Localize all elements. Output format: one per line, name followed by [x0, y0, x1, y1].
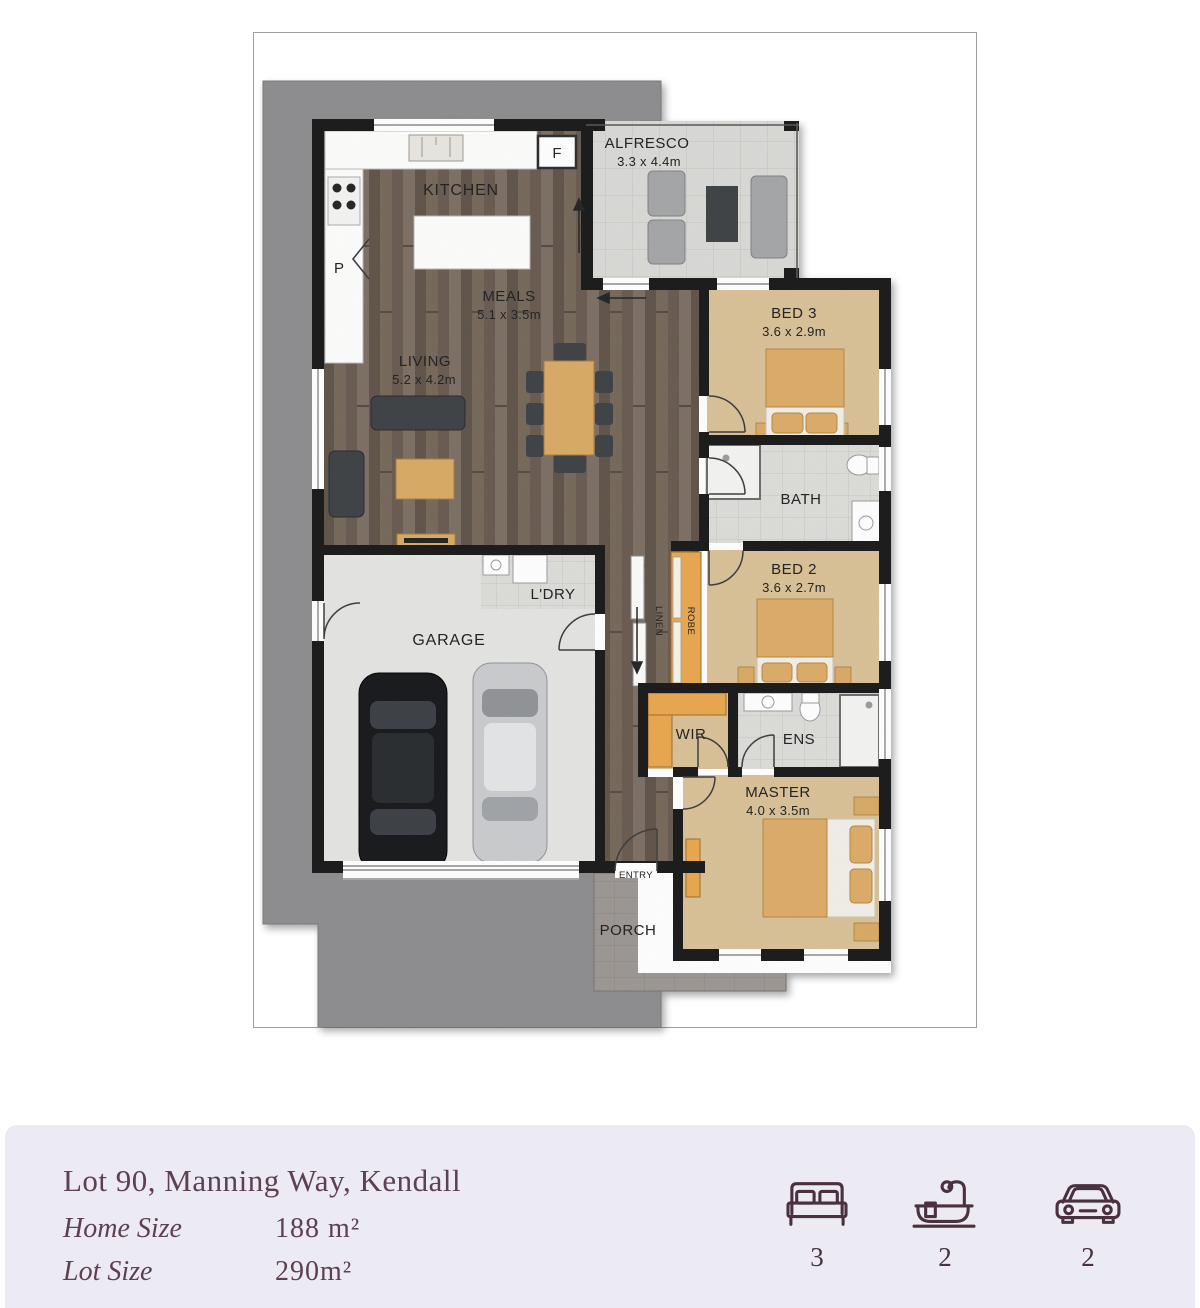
floorplan-svg: ALFRESCO 3.3 x 4.4m KITCHEN MEALS 5.1 x …: [254, 33, 976, 1027]
label-living: LIVING: [399, 353, 451, 370]
lot-size-label: Lot Size: [63, 1256, 275, 1288]
label-garage: GARAGE: [412, 632, 485, 649]
bed-icon: [778, 1220, 856, 1237]
label-bed3-dims: 3.6 x 2.9m: [762, 324, 826, 339]
label-living-dims: 5.2 x 4.2m: [392, 372, 456, 387]
bath-icon: [906, 1220, 984, 1237]
label-fridge: F: [552, 145, 561, 162]
label-pantry: P: [334, 260, 344, 277]
page: ALFRESCO 3.3 x 4.4m KITCHEN MEALS 5.1 x …: [0, 0, 1200, 1308]
home-size-row: Home Size188 m²: [63, 1213, 483, 1245]
cars-count: 2: [1033, 1242, 1143, 1273]
label-meals: MEALS: [482, 288, 535, 305]
label-wir: WIR: [676, 726, 707, 743]
floorplan-card: ALFRESCO 3.3 x 4.4m KITCHEN MEALS 5.1 x …: [253, 32, 977, 1028]
info-bar: Lot 90, Manning Way, Kendall Home Size18…: [5, 1125, 1195, 1308]
beds-count: 3: [762, 1242, 872, 1273]
baths-count: 2: [890, 1242, 1000, 1273]
address: Lot 90, Manning Way, Kendall: [63, 1163, 461, 1199]
stat-cars: 2: [1033, 1175, 1143, 1273]
label-kitchen: KITCHEN: [423, 182, 499, 199]
home-size-value: 188 m²: [275, 1213, 360, 1244]
label-meals-dims: 5.1 x 3.5m: [477, 307, 541, 322]
label-porch: PORCH: [600, 922, 657, 939]
label-bed2-dims: 3.6 x 2.7m: [762, 580, 826, 595]
label-alfresco: ALFRESCO: [605, 135, 690, 152]
stat-baths: 2: [890, 1175, 1000, 1273]
texture-overlay: [254, 33, 976, 1027]
label-alfresco-dims: 3.3 x 4.4m: [617, 154, 681, 169]
label-entry: ENTRY: [619, 870, 653, 881]
label-ldry: L'DRY: [530, 586, 575, 603]
car-icon: [1049, 1220, 1127, 1237]
label-linen: LINEN: [653, 606, 664, 636]
label-master: MASTER: [745, 784, 811, 801]
label-bed3: BED 3: [771, 305, 817, 322]
lot-size-row: Lot Size290m²: [63, 1256, 483, 1288]
stat-beds: 3: [762, 1175, 872, 1273]
label-bath: BATH: [781, 491, 822, 508]
lot-size-value: 290m²: [275, 1256, 352, 1287]
label-robe: ROBE: [685, 607, 696, 636]
label-master-dims: 4.0 x 3.5m: [746, 803, 810, 818]
home-size-label: Home Size: [63, 1213, 275, 1245]
label-ens: ENS: [783, 731, 815, 748]
label-bed2: BED 2: [771, 561, 817, 578]
